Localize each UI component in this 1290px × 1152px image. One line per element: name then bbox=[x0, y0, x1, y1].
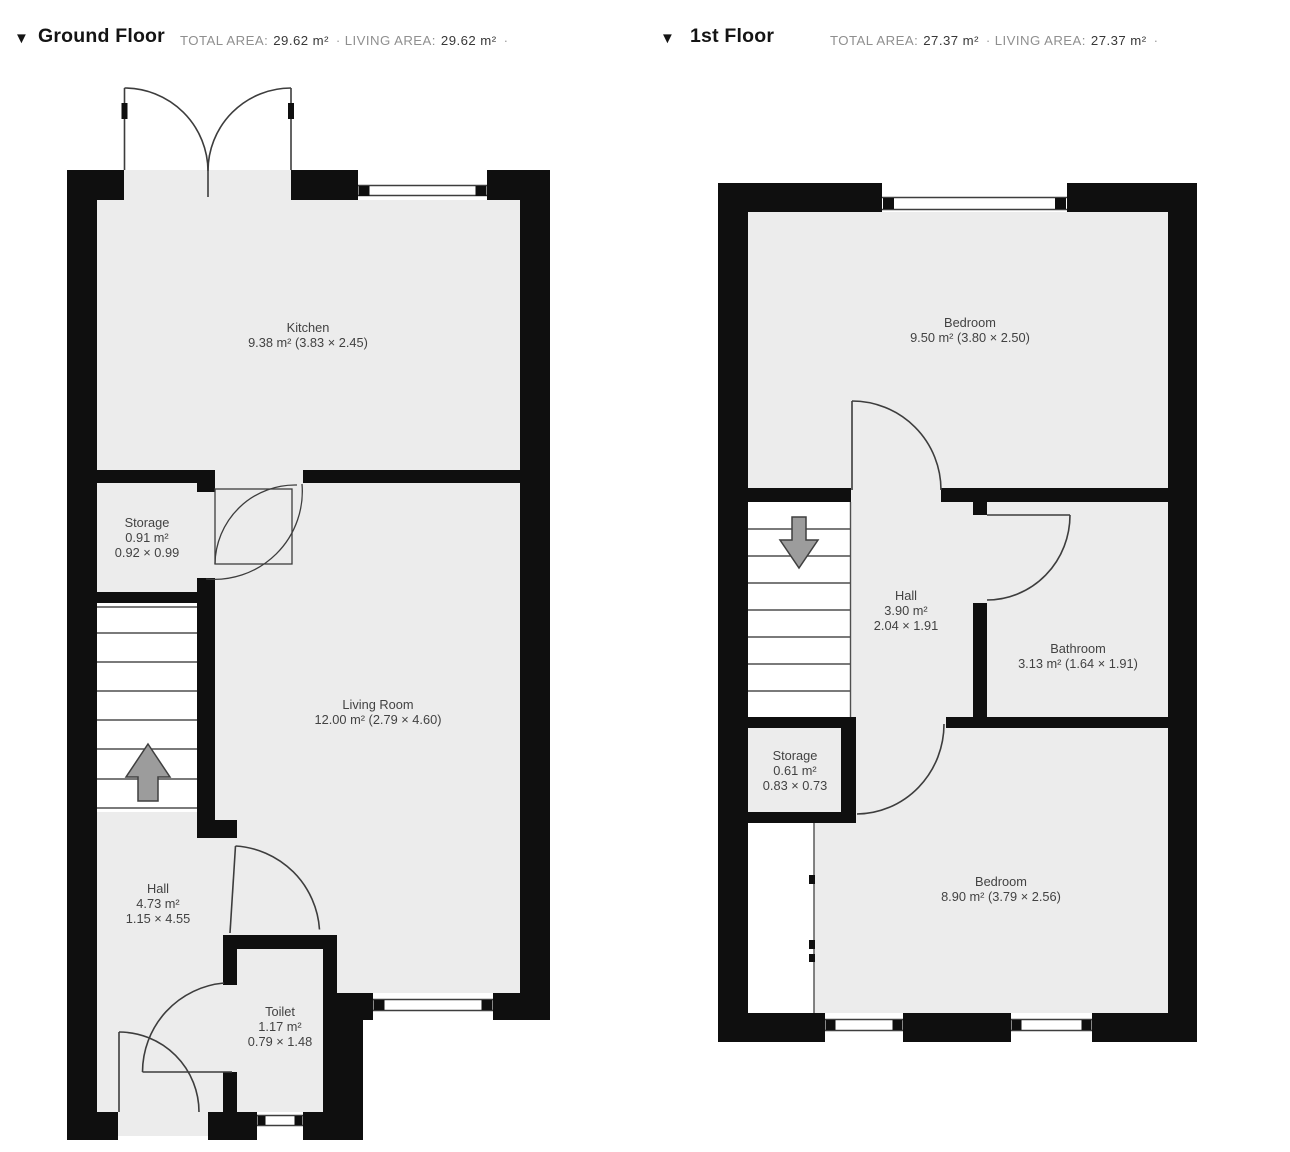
living-area-value: 27.37 m² bbox=[1091, 33, 1147, 48]
room-name: Bedroom bbox=[944, 315, 996, 330]
room-area: 12.00 m² (2.79 × 4.60) bbox=[315, 712, 442, 727]
living-area-value: 29.62 m² bbox=[441, 33, 497, 48]
room-name: Storage bbox=[773, 748, 818, 763]
room-dims: 0.92 × 0.99 bbox=[115, 545, 179, 560]
room-dims: 1.15 × 4.55 bbox=[126, 911, 190, 926]
kitchen-window bbox=[358, 170, 487, 200]
room-area: 0.61 m² bbox=[773, 763, 817, 778]
floorplan-page: Kitchen 9.38 m² (3.83 × 2.45) Storage 0.… bbox=[0, 0, 1290, 1152]
dot-separator: · bbox=[504, 33, 509, 48]
room-dims: 0.79 × 1.48 bbox=[248, 1034, 312, 1049]
total-area-value: 29.62 m² bbox=[273, 33, 329, 48]
room-area: 8.90 m² (3.79 × 2.56) bbox=[941, 889, 1061, 904]
room-area: 9.50 m² (3.80 × 2.50) bbox=[910, 330, 1030, 345]
room-name: Hall bbox=[895, 588, 917, 603]
ground-floor-plan: Kitchen 9.38 m² (3.83 × 2.45) Storage 0.… bbox=[67, 88, 550, 1140]
room-name: Kitchen bbox=[287, 320, 330, 335]
living-room-window bbox=[373, 993, 493, 1020]
collapse-triangle-icon[interactable]: ▼ bbox=[14, 31, 29, 46]
room-name: Bedroom bbox=[975, 874, 1027, 889]
first-floor-stairs bbox=[748, 502, 851, 717]
room-area: 4.73 m² bbox=[136, 896, 180, 911]
room-area: 3.90 m² bbox=[884, 603, 928, 618]
floorplan-drawing: Kitchen 9.38 m² (3.83 × 2.45) Storage 0.… bbox=[0, 0, 1290, 1152]
first-floor-title: 1st Floor bbox=[690, 25, 774, 48]
bedroom-back-window-right bbox=[1011, 1013, 1092, 1042]
room-area: 9.38 m² (3.83 × 2.45) bbox=[248, 335, 368, 350]
room-area: 3.13 m² (1.64 × 1.91) bbox=[1018, 656, 1138, 671]
room-area: 1.17 m² bbox=[258, 1019, 302, 1034]
living-area-label: LIVING AREA: bbox=[995, 33, 1086, 48]
floor-headers: ▼ Ground Floor TOTAL AREA:29.62 m²·LIVIN… bbox=[0, 0, 1290, 60]
total-area-label: TOTAL AREA: bbox=[830, 33, 918, 48]
collapse-triangle-icon[interactable]: ▼ bbox=[660, 31, 675, 46]
room-dims: 2.04 × 1.91 bbox=[874, 618, 938, 633]
ground-floor-stairs bbox=[97, 603, 197, 812]
toilet-window bbox=[257, 1112, 303, 1140]
room-name: Toilet bbox=[265, 1004, 295, 1019]
room-area: 0.91 m² bbox=[125, 530, 169, 545]
bedroom-back-window-left bbox=[825, 1013, 903, 1042]
room-dims: 0.83 × 0.73 bbox=[763, 778, 827, 793]
living-area-label: LIVING AREA: bbox=[345, 33, 436, 48]
dot-separator: · bbox=[1154, 33, 1159, 48]
total-area-value: 27.37 m² bbox=[923, 33, 979, 48]
first-floor-plan: Bedroom 9.50 m² (3.80 × 2.50) Hall 3.90 … bbox=[718, 183, 1197, 1042]
first-floor-stats: TOTAL AREA:27.37 m²·LIVING AREA:27.37 m²… bbox=[830, 33, 1162, 48]
room-name: Bathroom bbox=[1050, 641, 1105, 656]
ground-floor-stats: TOTAL AREA:29.62 m²·LIVING AREA:29.62 m²… bbox=[180, 33, 512, 48]
first-floor-closet bbox=[748, 823, 815, 1013]
dot-separator: · bbox=[336, 33, 341, 48]
dot-separator: · bbox=[986, 33, 991, 48]
room-name: Hall bbox=[147, 881, 169, 896]
ground-floor-title: Ground Floor bbox=[38, 25, 165, 48]
room-name: Living Room bbox=[342, 697, 413, 712]
room-name: Storage bbox=[125, 515, 170, 530]
total-area-label: TOTAL AREA: bbox=[180, 33, 268, 48]
bedroom-front-window bbox=[882, 183, 1067, 212]
